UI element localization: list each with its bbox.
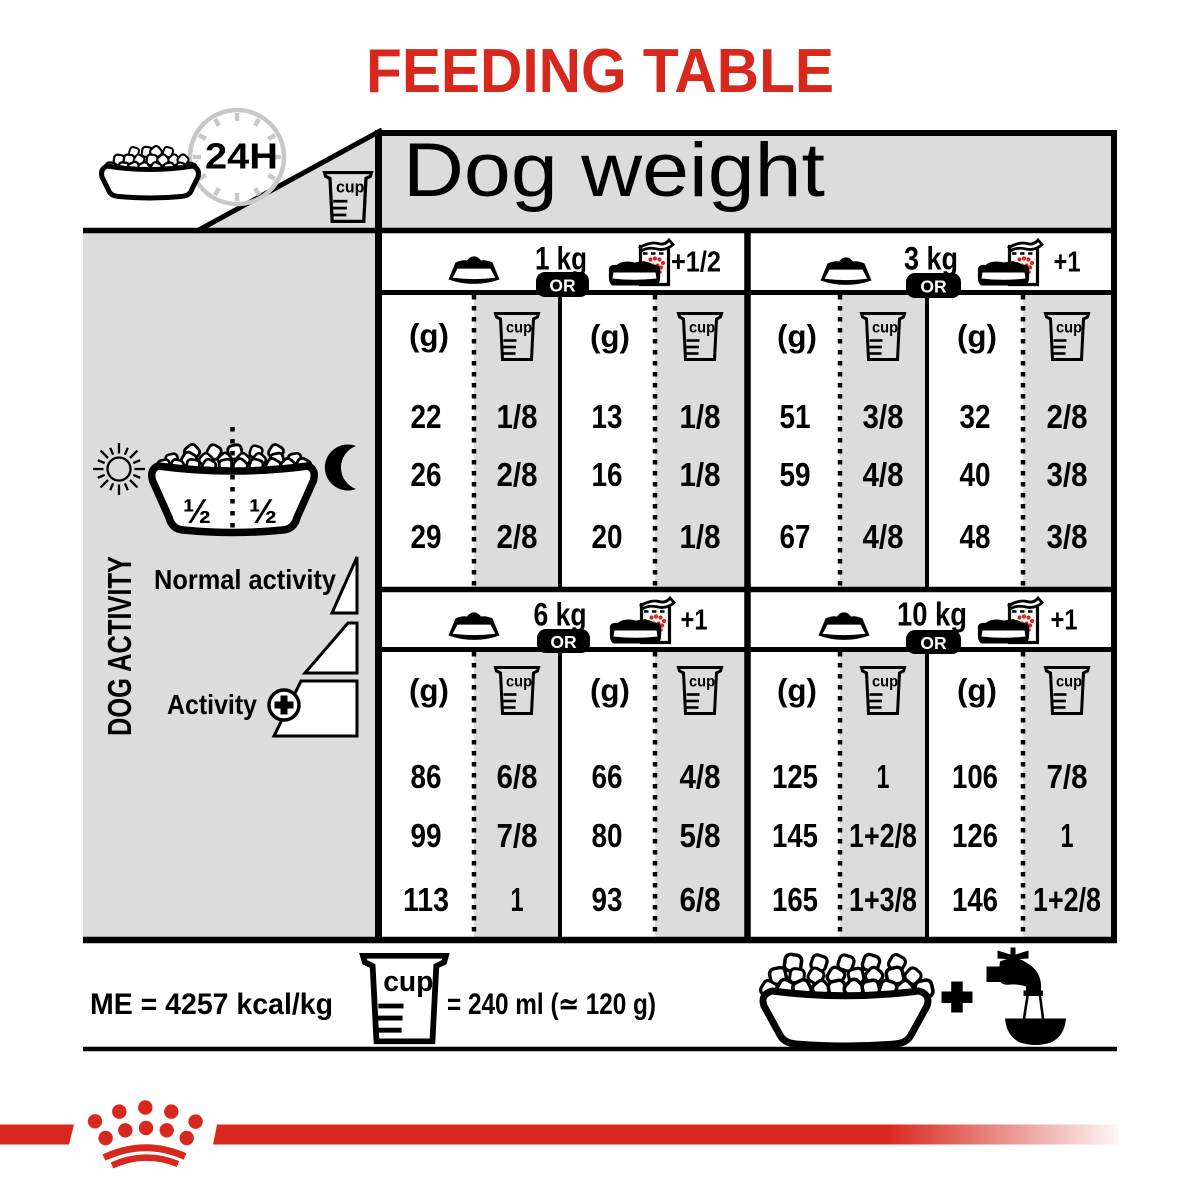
svg-text:OR: OR [920,277,947,297]
svg-text:(g): (g) [777,318,817,354]
svg-text:½: ½ [183,493,211,531]
svg-text:13: 13 [592,399,623,436]
svg-text:Activity: Activity [167,689,257,720]
svg-text:5/8: 5/8 [680,818,721,855]
svg-text:4/8: 4/8 [863,457,904,494]
svg-text:2/8: 2/8 [497,457,538,494]
svg-text:146: 146 [952,882,998,919]
svg-text:20: 20 [592,519,623,556]
svg-text:93: 93 [592,882,623,919]
svg-text:29: 29 [411,519,442,556]
svg-text:145: 145 [772,818,818,855]
svg-text:+1: +1 [1054,247,1081,279]
svg-text:86: 86 [411,759,442,796]
svg-text:ME = 4257 kcal/kg: ME = 4257 kcal/kg [90,988,333,1021]
svg-text:1: 1 [511,882,524,919]
svg-text:Normal activity: Normal activity [154,564,336,595]
svg-text:FEEDING TABLE: FEEDING TABLE [366,37,834,106]
svg-text:3/8: 3/8 [1047,519,1088,556]
svg-text:1+3/8: 1+3/8 [849,882,917,919]
svg-text:3 kg: 3 kg [904,241,958,277]
svg-text:16: 16 [592,457,623,494]
svg-text:(g): (g) [409,317,449,353]
svg-text:80: 80 [592,818,623,855]
svg-text:2/8: 2/8 [497,519,538,556]
svg-text:(g): (g) [590,318,630,354]
svg-text:1: 1 [877,759,890,796]
svg-text:40: 40 [960,457,991,494]
svg-text:(g): (g) [957,672,997,708]
svg-text:OR: OR [550,632,577,652]
svg-text:24H: 24H [205,136,278,177]
svg-text:6/8: 6/8 [497,759,538,796]
svg-text:+1/2: +1/2 [671,247,721,279]
svg-text:1 kg: 1 kg [535,241,587,277]
svg-text:OR: OR [549,276,576,296]
svg-text:1/8: 1/8 [680,399,721,436]
svg-text:(g): (g) [957,318,997,354]
svg-text:= 240 ml (≃ 120 g): = 240 ml (≃ 120 g) [447,988,656,1021]
svg-text:1+2/8: 1+2/8 [1033,882,1101,919]
svg-text:126: 126 [952,818,998,855]
svg-text:67: 67 [780,519,811,556]
svg-text:3/8: 3/8 [1047,457,1088,494]
svg-text:6 kg: 6 kg [534,597,587,633]
svg-text:OR: OR [920,633,947,653]
svg-text:+1: +1 [681,605,708,637]
svg-text:99: 99 [411,818,442,855]
svg-text:1/8: 1/8 [680,457,721,494]
svg-text:½: ½ [249,493,277,531]
svg-text:2/8: 2/8 [1047,399,1088,436]
svg-text:7/8: 7/8 [497,818,538,855]
svg-text:(g): (g) [590,672,630,708]
svg-text:10 kg: 10 kg [897,596,967,633]
svg-text:22: 22 [411,399,442,436]
svg-text:6/8: 6/8 [680,882,721,919]
svg-text:113: 113 [403,882,449,919]
svg-text:DOG ACTIVITY: DOG ACTIVITY [101,556,138,736]
svg-text:165: 165 [772,882,818,919]
svg-text:3/8: 3/8 [863,399,904,436]
svg-text:125: 125 [772,759,818,796]
svg-text:1: 1 [1061,818,1074,855]
svg-text:26: 26 [411,457,442,494]
svg-text:7/8: 7/8 [1047,759,1088,796]
svg-text:4/8: 4/8 [680,759,721,796]
svg-text:66: 66 [592,759,623,796]
svg-text:1/8: 1/8 [680,519,721,556]
svg-text:+1: +1 [1051,605,1078,637]
svg-text:59: 59 [780,457,811,494]
svg-text:4/8: 4/8 [863,519,904,556]
svg-text:51: 51 [780,399,811,436]
svg-text:48: 48 [960,519,991,556]
svg-text:1+2/8: 1+2/8 [849,818,917,855]
svg-text:(g): (g) [777,672,817,708]
svg-text:Dog weight: Dog weight [403,128,825,213]
svg-text:106: 106 [952,759,998,796]
svg-text:1/8: 1/8 [497,399,538,436]
svg-text:(g): (g) [409,672,449,708]
svg-text:32: 32 [960,399,991,436]
